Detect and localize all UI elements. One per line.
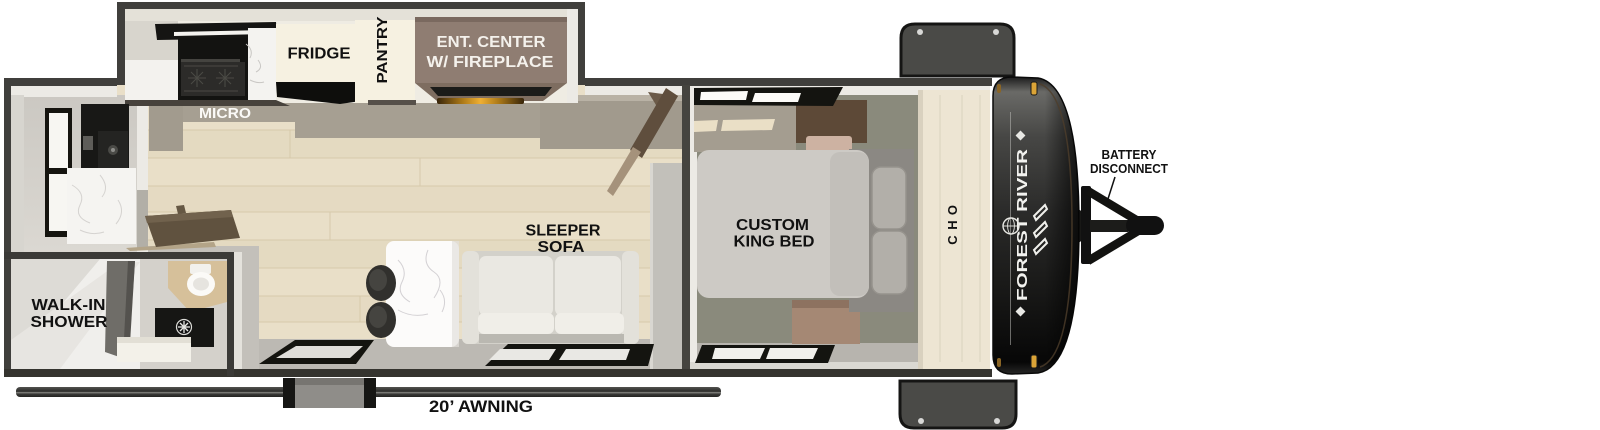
svg-text:ENT. CENTER: ENT. CENTER [437,34,546,51]
svg-text:KING BED: KING BED [734,234,815,251]
svg-text:FOREST RIVER: FOREST RIVER [1014,149,1031,301]
svg-text:CUSTOM: CUSTOM [736,217,809,234]
svg-text:O: O [945,205,960,215]
svg-text:MICRO: MICRO [199,106,251,122]
svg-text:PANTRY: PANTRY [374,17,391,84]
svg-text:FRIDGE: FRIDGE [288,46,351,63]
svg-text:SHOWER: SHOWER [31,314,108,331]
svg-text:H: H [945,220,960,229]
svg-text:20’ AWNING: 20’ AWNING [429,397,533,416]
svg-text:WALK-IN: WALK-IN [32,297,106,314]
svg-text:SLEEPER: SLEEPER [526,223,601,240]
svg-text:DISCONNECT: DISCONNECT [1090,162,1168,176]
svg-text:C: C [945,235,960,245]
svg-text:SOFA: SOFA [538,239,585,256]
svg-text:W/ FIREPLACE: W/ FIREPLACE [427,54,554,71]
svg-text:BATTERY: BATTERY [1102,148,1158,162]
